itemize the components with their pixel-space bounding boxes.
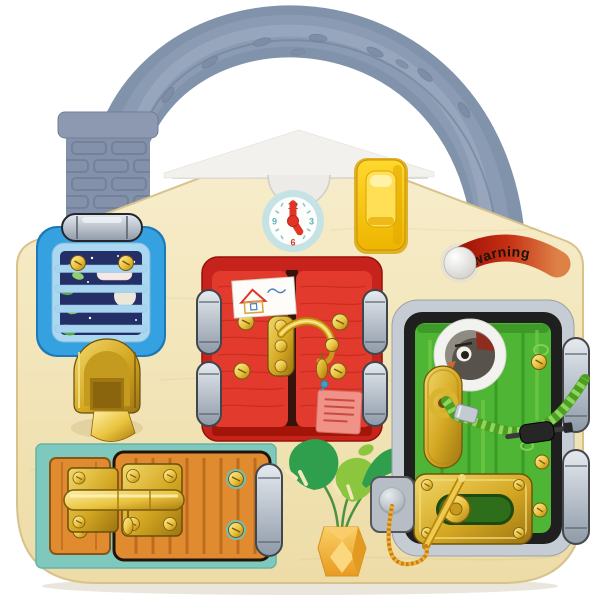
latch-pendant[interactable] [317,359,328,379]
warning-ball[interactable] [444,247,476,279]
keyhole-slide-bolt[interactable] [414,474,532,546]
padlock[interactable] [71,339,143,442]
barrel-bolt-latch[interactable] [64,464,184,536]
orange-door-hinge [256,464,282,556]
window-clasp[interactable] [62,214,142,241]
clock-numeral-6: 6 [290,238,295,248]
latch-anchor [326,339,339,352]
plant-pot [318,527,366,576]
red-doors-unit[interactable] [197,257,387,441]
clock-numeral-9: 9 [272,217,277,227]
switch-toggle-shade [368,217,394,225]
padlock-tongue[interactable] [91,411,135,442]
drawing-card [232,277,296,318]
padlock-well-deep [93,382,121,408]
busy-board-scene: 12 3 6 9 warning [0,0,600,600]
bolt-barrel[interactable] [64,490,184,510]
clock-hub [288,216,299,227]
switch-toggle-highlight [370,175,392,187]
toggle-switch[interactable] [354,158,408,254]
clock: 12 3 6 9 [262,190,324,252]
slide-bolt-unit[interactable] [36,444,282,568]
green-door-unit[interactable] [371,300,589,564]
clock-numeral-3: 3 [309,217,314,227]
bolt-knob-pendant[interactable] [123,518,133,535]
note-pin [321,381,328,388]
